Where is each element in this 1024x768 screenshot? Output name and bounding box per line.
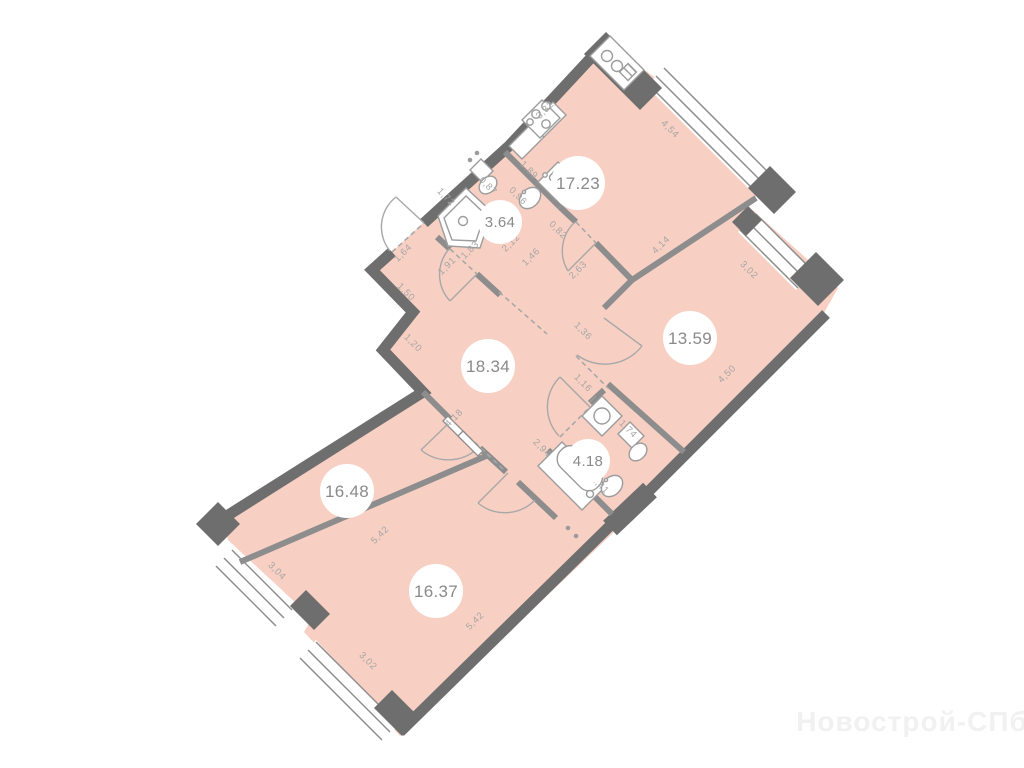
- watermark: Новострой-СПб: [796, 706, 1024, 737]
- hook-dot: [468, 158, 471, 161]
- svg-text:4.18: 4.18: [573, 453, 603, 470]
- room-area-bathroom-small: 3.64: [478, 200, 522, 244]
- room-area-kitchen-living: 17.23: [551, 156, 605, 210]
- svg-text:3.64: 3.64: [485, 214, 515, 231]
- room-area-bathroom-large: 4.18: [566, 439, 610, 483]
- svg-text:13.59: 13.59: [668, 329, 712, 348]
- hook-dot: [475, 151, 478, 154]
- svg-text:16.48: 16.48: [325, 482, 369, 501]
- hook-dot: [566, 526, 569, 529]
- room-area-bedroom-bottom: 16.37: [409, 564, 463, 618]
- room-area-bedroom-left: 16.48: [320, 464, 374, 518]
- room-area-bedroom-right: 13.59: [663, 311, 717, 365]
- floor-plan-svg: 3,32 4,54 1,89 0,96 0,87 1,72 1,83 1,91 …: [0, 0, 1024, 768]
- svg-text:17.23: 17.23: [556, 174, 600, 193]
- floor-plan-page: 3,32 4,54 1,89 0,96 0,87 1,72 1,83 1,91 …: [0, 0, 1024, 768]
- svg-text:16.37: 16.37: [414, 582, 458, 601]
- hook-dot: [574, 534, 577, 537]
- room-area-hall: 18.34: [461, 339, 515, 393]
- svg-text:18.34: 18.34: [466, 357, 510, 376]
